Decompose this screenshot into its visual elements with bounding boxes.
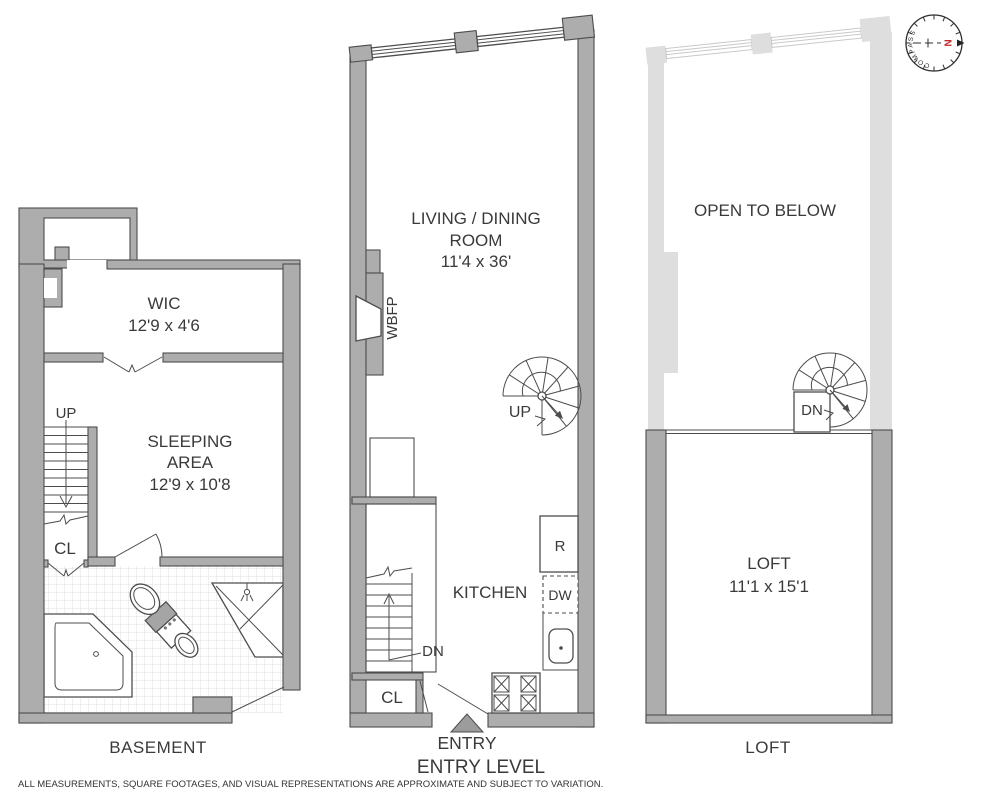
floorplan-drawing: WIC 12'9 x 4'6 SLEEPING AREA 12'9 x 10'8… <box>0 0 1000 800</box>
living-dining-label-2: ROOM <box>450 231 503 250</box>
basement-title: BASEMENT <box>109 738 207 757</box>
loft-dn-label: DN <box>801 402 823 419</box>
window <box>477 27 565 46</box>
entry-marker-label: ENTRY <box>438 733 497 753</box>
loft-ghost-window-wall <box>645 16 892 66</box>
entry-cl-label: CL <box>381 688 403 707</box>
floorplan-page: WIC 12'9 x 4'6 SLEEPING AREA 12'9 x 10'8… <box>0 0 1000 800</box>
wic-room-label: WIC <box>147 294 180 313</box>
entry-window-wall <box>349 15 595 64</box>
entry-arrow-icon <box>451 714 483 732</box>
entry-up-label: UP <box>509 404 531 421</box>
basement-cl-label: CL <box>54 539 76 558</box>
entry-level-title: ENTRY LEVEL <box>417 757 545 778</box>
wic-room-dims: 12'9 x 4'6 <box>128 316 200 335</box>
open-to-below-label: OPEN TO BELOW <box>694 201 836 220</box>
compass-north-label: N <box>942 39 953 46</box>
loft-room-label: LOFT <box>747 554 790 573</box>
sleeping-area-label-1: SLEEPING <box>147 432 232 451</box>
stove-icon <box>492 673 540 713</box>
disclaimer-text: ALL MEASUREMENTS, SQUARE FOOTAGES, AND V… <box>18 779 603 790</box>
loft-ghost-walls <box>648 32 892 430</box>
loft-room-top-wall <box>666 430 872 434</box>
basement-up-label: UP <box>56 405 77 422</box>
window <box>371 39 456 58</box>
sleeping-area-dims: 12'9 x 10'8 <box>149 475 230 494</box>
kitchen-label: KITCHEN <box>453 583 528 602</box>
compass-icon: COMPASS N <box>906 15 965 71</box>
entry-door-symbols <box>420 681 488 714</box>
spiral-staircase-up-icon <box>503 357 581 435</box>
loft-floorplan: OPEN TO BELOW DN LOFT 11'1 x 15'1 LOFT <box>645 16 892 757</box>
refrigerator-label: R <box>555 538 566 555</box>
kitchen-sink-icon <box>549 629 573 663</box>
entry-level-floorplan: LIVING / DINING ROOM 11'4 x 36' WBFP UP … <box>349 15 595 778</box>
basement-stairs <box>44 420 88 524</box>
basement-floorplan: WIC 12'9 x 4'6 SLEEPING AREA 12'9 x 10'8… <box>19 208 300 757</box>
loft-title: LOFT <box>745 738 790 757</box>
loft-room-dims: 11'1 x 15'1 <box>729 577 809 596</box>
living-dining-label-1: LIVING / DINING <box>411 209 540 228</box>
wbfp-label: WBFP <box>384 296 401 339</box>
dishwasher-label: DW <box>548 587 572 603</box>
sleeping-area-label-2: AREA <box>167 453 214 472</box>
entry-dn-label: DN <box>422 643 444 660</box>
living-dining-dims: 11'4 x 36' <box>441 252 511 271</box>
entry-stairwell <box>366 438 436 672</box>
